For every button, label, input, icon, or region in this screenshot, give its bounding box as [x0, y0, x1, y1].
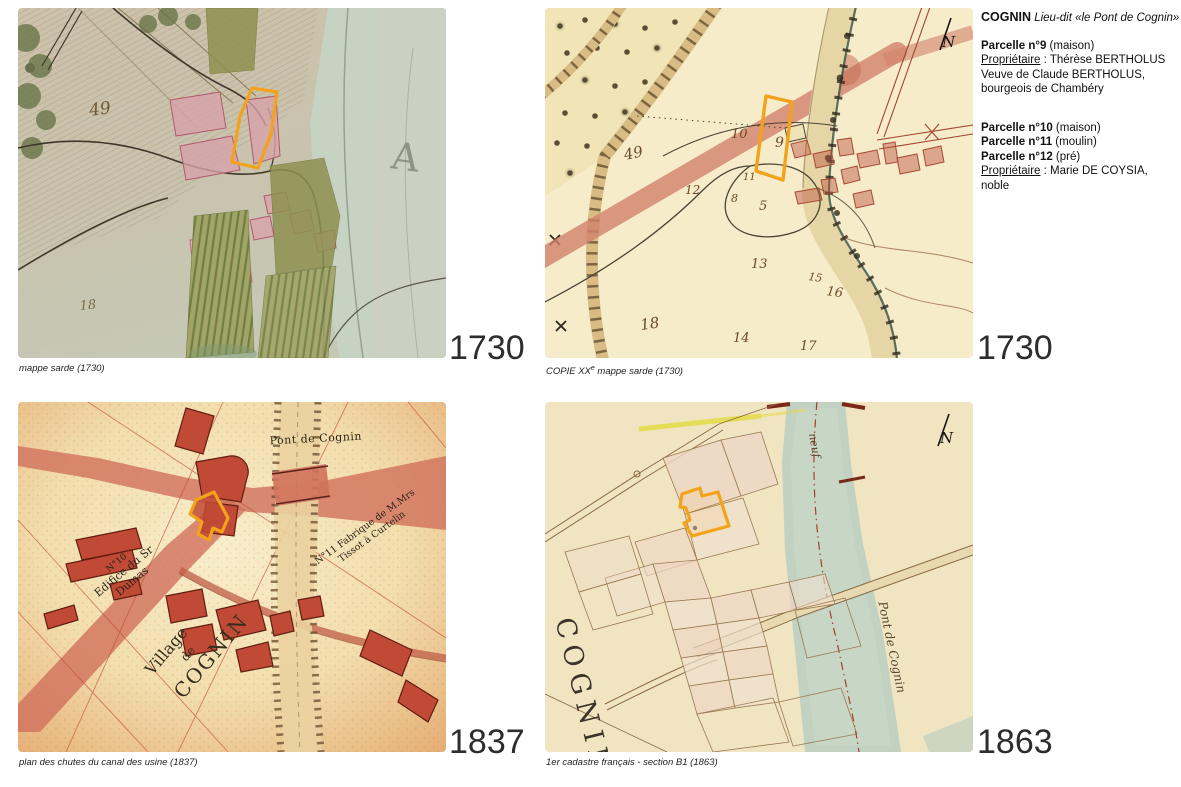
year-label-cadastre: 1863 — [977, 725, 1053, 759]
year-label-copie: 1730 — [977, 331, 1053, 365]
parcels-10-12-owner: Propriétaire : Marie DE COYSIA, noble — [981, 164, 1177, 193]
caption-plan: plan des chutes du canal des usine (1837… — [19, 757, 198, 768]
map-image-sarde: A — [18, 8, 446, 358]
document-page: A — [0, 0, 1181, 787]
map-image-copie: 10 9 49 11 12 8 5 13 15 16 18 14 17 N — [545, 8, 973, 358]
parcel-9-block: Parcelle n°9 (maison) Propriétaire : Thé… — [981, 39, 1177, 97]
caption-copie-pre: COPIE XX — [546, 366, 591, 377]
north-label: N — [939, 429, 954, 447]
number-11: 11 — [743, 172, 756, 183]
number-17: 17 — [800, 339, 817, 354]
parcel-9-owner: Propriétaire : Thérèse BERTHOLUS — [981, 53, 1177, 68]
number-13: 13 — [751, 257, 768, 272]
parcels-10-12-block: Parcelle n°10 (maison) Parcelle n°11 (mo… — [981, 121, 1177, 194]
number-12: 12 — [685, 183, 700, 197]
parcel-9-owner-line3: bourgeois de Chambéry — [981, 82, 1177, 97]
parcel-9-owner-line2: Veuve de Claude BERTHOLUS, — [981, 68, 1177, 83]
number-5: 5 — [759, 199, 767, 214]
parcel-9-line: Parcelle n°9 (maison) — [981, 39, 1177, 54]
map-image-cadastre: COGNIN Pont de Cognin neuf N — [545, 402, 973, 752]
north-label: N — [941, 33, 956, 51]
parcel-12-line: Parcelle n°12 (pré) — [981, 150, 1177, 165]
number-15: 15 — [808, 270, 824, 285]
caption-copie-post: mappe sarde (1730) — [595, 366, 683, 377]
map-mappe-sarde-1730: A — [18, 8, 446, 358]
map-cadastre-1863: COGNIN Pont de Cognin neuf N — [545, 402, 973, 752]
parcel-11-line: Parcelle n°11 (moulin) — [981, 135, 1177, 150]
caption-copie: COPIE XXe mappe sarde (1730) — [546, 363, 683, 377]
parcel-number-18: 18 — [79, 298, 97, 314]
map-plan-chutes-1837: Pont de Cognin N°10 Edifice du Sr Dumas … — [18, 402, 446, 752]
parcel-10-line: Parcelle n°10 (maison) — [981, 121, 1177, 136]
caption-sarde: mappe sarde (1730) — [19, 363, 105, 374]
number-14: 14 — [733, 331, 750, 346]
info-subtitle: Lieu-dit «le Pont de Cognin» — [1031, 12, 1179, 24]
info-title-line: COGNIN Lieu-dit «le Pont de Cognin» — [981, 10, 1177, 26]
number-9: 9 — [775, 135, 784, 151]
year-label-sarde: 1730 — [449, 331, 525, 365]
year-label-plan: 1837 — [449, 725, 525, 759]
number-8: 8 — [731, 192, 738, 205]
number-18: 18 — [639, 313, 660, 333]
map-image-plan: Pont de Cognin N°10 Edifice du Sr Dumas … — [18, 402, 446, 752]
map-copie-mappe-sarde-1730: 10 9 49 11 12 8 5 13 15 16 18 14 17 N — [545, 8, 973, 358]
number-10: 10 — [731, 127, 748, 142]
number-16: 16 — [825, 284, 843, 301]
parcel-number-49: 49 — [87, 98, 112, 121]
info-title: COGNIN — [981, 10, 1031, 24]
caption-cadastre: 1er cadastre français - section B1 (1863… — [546, 757, 718, 768]
parcel-mark — [693, 526, 697, 530]
parcel-info-panel: COGNIN Lieu-dit «le Pont de Cognin» Parc… — [981, 10, 1177, 193]
